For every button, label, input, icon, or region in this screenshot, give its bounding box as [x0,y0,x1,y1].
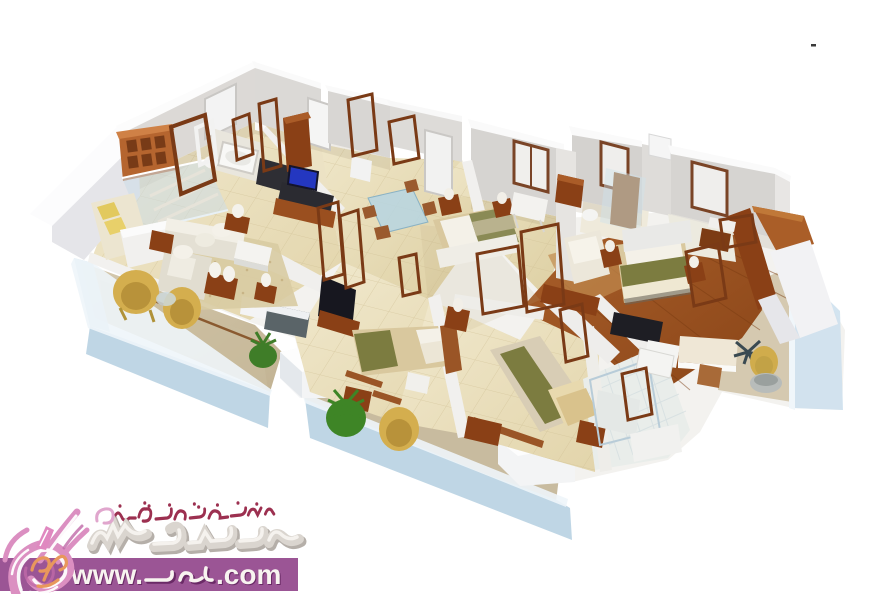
svg-text:.com: .com [216,559,281,590]
svg-text:www.: www. [70,559,143,590]
